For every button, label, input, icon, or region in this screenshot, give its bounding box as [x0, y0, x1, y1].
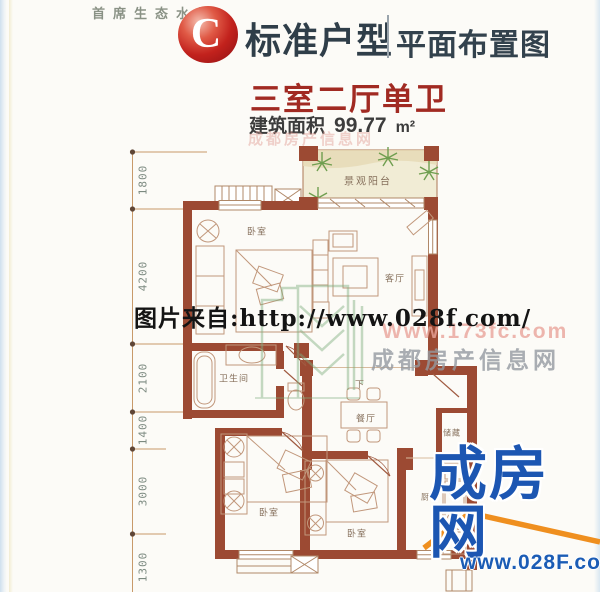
room-label-living: 客厅: [385, 272, 405, 285]
room-label-bathroom: 卫生间: [219, 372, 249, 385]
dimension-label-1800: 1800: [137, 165, 150, 196]
dimension-label-2100: 2100: [137, 363, 150, 394]
dimension-label-4200: 4200: [137, 261, 150, 292]
room-label-bedroom-left: 卧室: [259, 506, 279, 519]
stairs-down-label: 下: [355, 378, 365, 391]
room-label-balcony: 景观阳台: [344, 173, 392, 188]
floorplan-page: 首席生态水景 C 标准户型 平面布置图 三室二厅单卫 建筑面积 99.77 m²: [0, 0, 600, 592]
dimension-label-1400: 1400: [137, 415, 150, 446]
room-label-dining: 餐厅: [356, 412, 376, 425]
site-logo-url: www.028F.com: [460, 551, 600, 575]
dimension-label-3000: 3000: [137, 476, 150, 507]
room-label-storage: 储藏: [443, 428, 461, 439]
windows-group: [219, 198, 451, 559]
room-label-bedroom-mid: 卧室: [347, 527, 367, 540]
dimension-label-1300: 1300: [137, 552, 150, 583]
site-logo: 成房网: [429, 446, 600, 562]
room-label-bedroom-top: 卧室: [247, 225, 267, 238]
